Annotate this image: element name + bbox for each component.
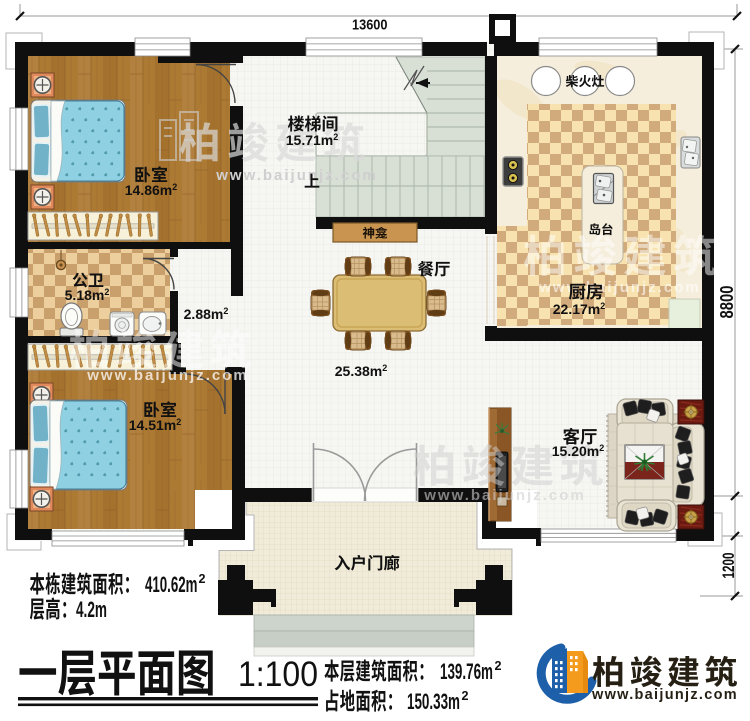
svg-text:25.38m2: 25.38m2 — [335, 363, 388, 379]
svg-text:15.71m2: 15.71m2 — [286, 132, 339, 148]
svg-text:5.18m2: 5.18m2 — [65, 287, 110, 303]
svg-text:2: 2 — [199, 571, 206, 586]
svg-text:13600: 13600 — [352, 17, 388, 34]
svg-text:www.baijunjz.com: www.baijunjz.com — [423, 487, 585, 504]
svg-text:22.17m2: 22.17m2 — [553, 301, 606, 317]
svg-text:15.20m2: 15.20m2 — [552, 443, 605, 459]
svg-text:1200: 1200 — [719, 553, 738, 579]
svg-text:410.62m: 410.62m — [145, 572, 198, 597]
svg-text:4.2m: 4.2m — [76, 597, 107, 622]
svg-text:8800: 8800 — [717, 286, 737, 319]
svg-text:2: 2 — [462, 688, 469, 703]
svg-text:www.baijunjz.com: www.baijunjz.com — [215, 167, 377, 184]
svg-text:www.baijunjz.com: www.baijunjz.com — [86, 367, 248, 384]
svg-text:www.baijunjz.com: www.baijunjz.com — [538, 279, 700, 296]
svg-text:14.51m2: 14.51m2 — [129, 417, 182, 433]
svg-text:2.88m2: 2.88m2 — [184, 306, 229, 322]
svg-text:2: 2 — [495, 658, 502, 673]
svg-text:www.baijunjz.com: www.baijunjz.com — [591, 687, 738, 703]
svg-text:150.33m: 150.33m — [407, 689, 460, 714]
svg-text:14.86m2: 14.86m2 — [125, 182, 178, 198]
svg-text:1:100: 1:100 — [238, 655, 318, 694]
svg-text:139.76m: 139.76m — [440, 659, 493, 684]
